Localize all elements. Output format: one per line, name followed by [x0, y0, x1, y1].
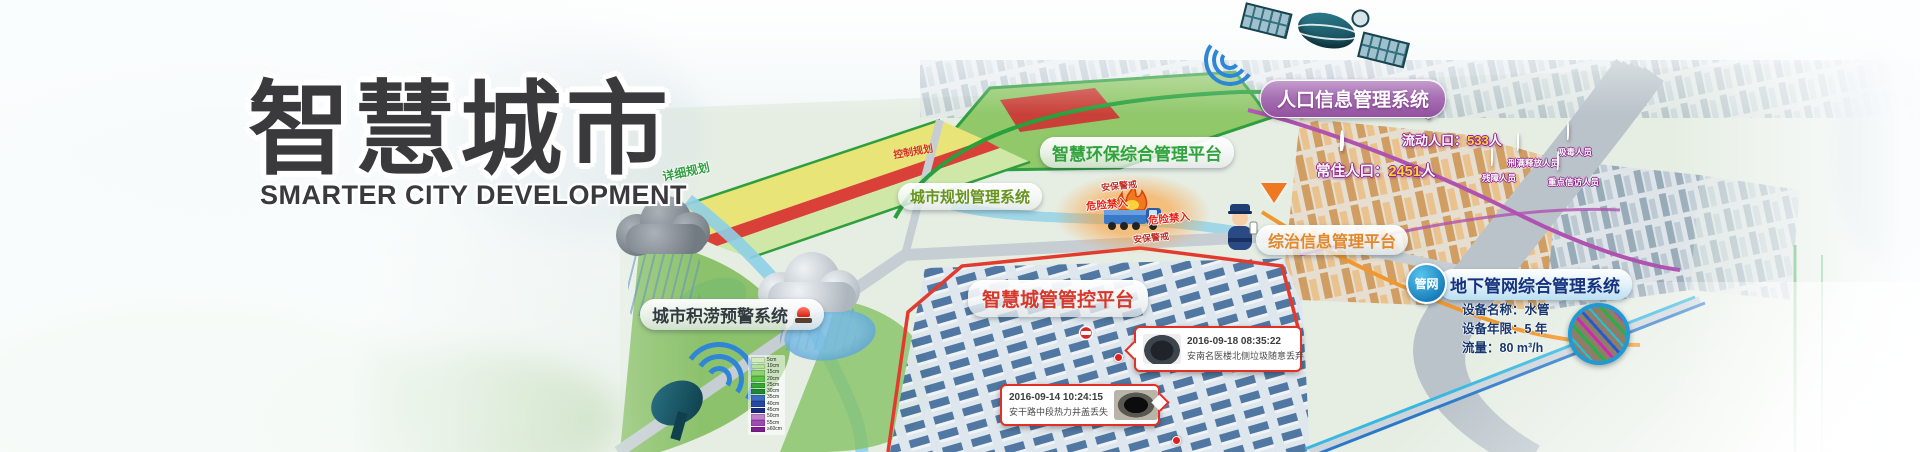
floating-population-unit: 人: [1489, 133, 1502, 148]
special-group-label: 重点信访人员: [1548, 177, 1599, 187]
legend-color-swatch: [751, 401, 765, 407]
person-pin-icon: [1567, 122, 1592, 140]
police-officer-icon: [1222, 198, 1258, 258]
pipeline-detail-line: 流量：80 m³/h: [1462, 339, 1550, 358]
satellite-dish-cap: [1350, 8, 1372, 30]
resident-population-label: 常住人口：2451人: [1316, 160, 1435, 181]
manhole-photo: [1114, 390, 1158, 420]
incident-text: 2016-09-18 08:35:22 安南名医楼北侧垃圾随意丢弃: [1187, 336, 1304, 362]
label-urban-planning-system: 城市规划管理系统: [898, 183, 1042, 210]
legend-color-swatch: [751, 427, 765, 433]
legend-depth-label: 10cm: [767, 364, 779, 369]
bottom-right-fade: [1200, 282, 1920, 452]
pipeline-magnifier-view: [1568, 303, 1630, 365]
pipeline-details: 设备名称：水管 设备年限：5 年 流量：80 m³/h: [1462, 301, 1550, 358]
legend-color-swatch: [751, 383, 765, 389]
smart-city-banner: 智慧城市 SMARTER CITY DEVELOPMENT 智慧环保综合管理平台…: [0, 0, 1920, 452]
floating-population-value: 533: [1467, 133, 1489, 148]
label-governance-platform: 综治信息管理平台: [1256, 225, 1408, 255]
label-pipeline-system: 地下管网综合管理系统: [1438, 269, 1632, 300]
legend-color-swatch: [751, 414, 765, 420]
legend-color-swatch: [751, 408, 765, 414]
special-group-key-petitioners: 重点信访人员: [1548, 152, 1599, 190]
legend-depth-label: 25cm: [767, 383, 779, 388]
incident-description: 安干路中段热力井盖丢失: [1009, 405, 1108, 418]
legend-depth-label: 15cm: [767, 370, 779, 375]
satellite-dish-icon: [646, 376, 716, 446]
incident-text: 2016-09-14 10:24:15 安干路中段热力井盖丢失: [1009, 392, 1108, 418]
page-subtitle: SMARTER CITY DEVELOPMENT: [260, 180, 687, 211]
incident-callout-manhole: 2016-09-14 10:24:15 安干路中段热力井盖丢失: [1000, 384, 1160, 426]
legend-color-swatch: [751, 389, 765, 395]
legend-color-swatch: [751, 370, 765, 376]
special-group-label: 残障人员: [1482, 173, 1516, 183]
solar-panel-icon: [1357, 32, 1410, 69]
special-group-disabled: 残障人员: [1482, 148, 1516, 186]
legend-color-swatch: [751, 364, 765, 370]
legend-color-swatch: [751, 420, 765, 426]
orange-location-marker: [1261, 183, 1287, 203]
legend-depth-label: 40cm: [767, 402, 779, 407]
legend-depth-label: 55cm: [767, 421, 779, 426]
incident-callout-garbage: 2016-09-18 08:35:22 安南名医楼北侧垃圾随意丢弃: [1134, 326, 1302, 372]
pipeline-detail-line: 设备名称：水管: [1462, 301, 1550, 320]
page-title: 智慧城市: [248, 48, 672, 195]
person-pin-icon: [1517, 133, 1559, 151]
floating-population-label: 流动人口：533人: [1402, 130, 1502, 149]
person-pin-icon: [1557, 152, 1599, 170]
flood-warning-text: 城市积涝预警系统: [652, 302, 788, 327]
alarm-siren-icon: [795, 307, 812, 323]
flood-depth-legend: 5cm 10cm 15cm 20cm 25cm: [748, 355, 785, 435]
legend-color-swatch: [751, 395, 765, 401]
resident-population-prefix: 常住人口：: [1316, 164, 1389, 180]
resident-population-unit: 人: [1421, 164, 1436, 180]
legend-depth-label: 45cm: [767, 408, 779, 413]
legend-row: 15cm: [751, 370, 782, 376]
label-population-system: 人口信息管理系统: [1260, 79, 1446, 118]
label-flood-warning-system: 城市积涝预警系统: [640, 299, 824, 330]
legend-row: ≥60cm: [751, 426, 782, 432]
label-city-management-platform: 智慧城管管控平台: [968, 280, 1148, 317]
incident-time: 2016-09-14 10:24:15: [1009, 392, 1108, 403]
legend-color-swatch: [751, 357, 765, 363]
legend-depth-label: ≥60cm: [767, 427, 782, 432]
resident-population-value: 2451: [1389, 164, 1421, 180]
incident-description: 安南名医楼北侧垃圾随意丢弃: [1187, 349, 1304, 362]
floating-population-prefix: 流动人口：: [1402, 133, 1467, 148]
incident-time: 2016-09-18 08:35:22: [1187, 336, 1304, 347]
legend-depth-label: 30cm: [767, 389, 779, 394]
garbage-photo: [1143, 334, 1181, 364]
legend-depth-label: 50cm: [767, 414, 779, 419]
legend-depth-label: 35cm: [767, 395, 779, 400]
pipeline-badge: 管网: [1406, 263, 1447, 304]
label-environment-platform: 智慧环保综合管理平台: [1040, 137, 1234, 168]
population-pin-resident: [1340, 132, 1344, 150]
satellite-signal-icon: [1204, 34, 1256, 86]
incident-location-dot: [1114, 353, 1123, 362]
pipeline-detail-line: 设备年限：5 年: [1462, 320, 1550, 339]
legend-depth-label: 5cm: [767, 358, 776, 363]
legend-color-swatch: [751, 376, 765, 382]
legend-depth-label: 20cm: [767, 377, 779, 382]
person-pin-icon: [1491, 148, 1516, 166]
no-entry-sign: [1080, 327, 1093, 340]
incident-location-dot: [1172, 436, 1181, 445]
